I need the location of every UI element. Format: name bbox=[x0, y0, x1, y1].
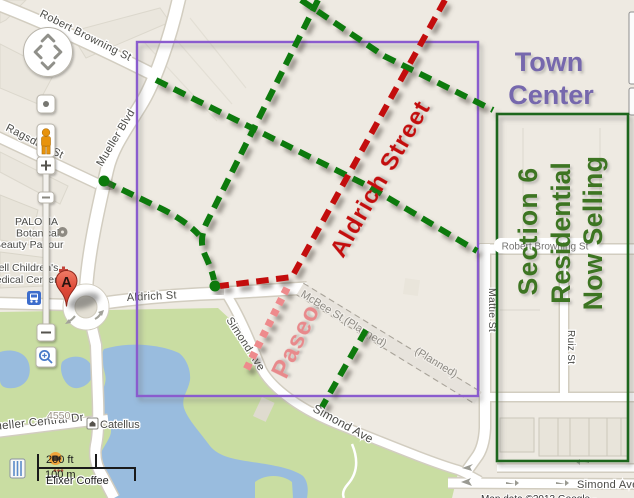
svg-text:200 ft: 200 ft bbox=[46, 454, 74, 466]
svg-text:4550: 4550 bbox=[47, 410, 71, 422]
svg-text:Section 6: Section 6 bbox=[513, 167, 543, 296]
svg-text:Dell Children's: Dell Children's bbox=[0, 262, 58, 274]
svg-text:Ruiz St: Ruiz St bbox=[565, 330, 576, 364]
svg-text:Beauty Parlour: Beauty Parlour bbox=[0, 239, 64, 251]
svg-text:Town: Town bbox=[515, 47, 583, 77]
svg-text:100 m: 100 m bbox=[45, 469, 76, 481]
svg-text:Residential: Residential bbox=[546, 162, 576, 303]
svg-text:Center: Center bbox=[508, 80, 594, 110]
svg-text:Map data ©2013 Google -: Map data ©2013 Google - bbox=[481, 494, 596, 498]
svg-text:A: A bbox=[61, 275, 72, 291]
svg-text:Now Selling: Now Selling bbox=[578, 156, 608, 311]
svg-text:Botanical: Botanical bbox=[16, 228, 59, 240]
svg-text:Simond Ave: Simond Ave bbox=[577, 479, 634, 491]
svg-text:PALOMA: PALOMA bbox=[15, 216, 58, 228]
svg-text:Catellus: Catellus bbox=[100, 419, 140, 431]
